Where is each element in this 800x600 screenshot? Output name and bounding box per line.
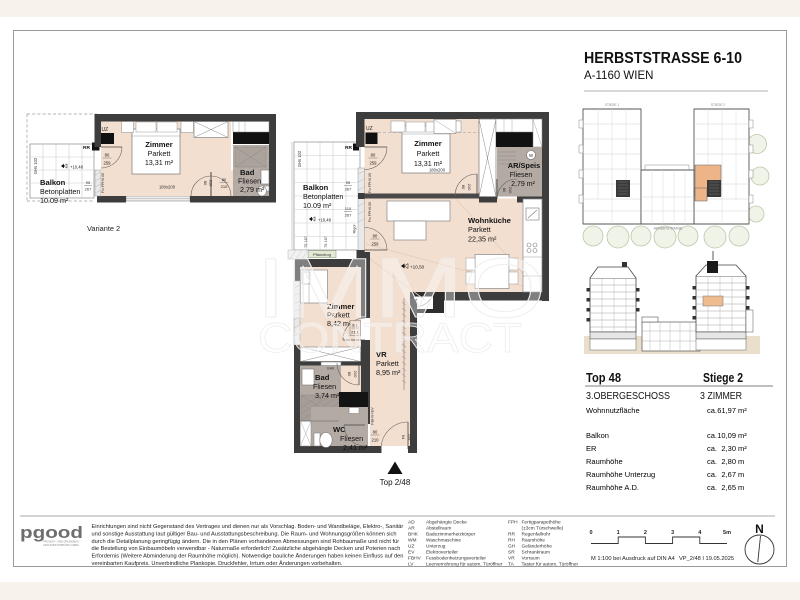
svg-text:Parkett: Parkett: [417, 149, 440, 158]
svg-text:FPH: FPH: [508, 520, 518, 526]
svg-text:HERBSTSTRASSE: HERBSTSTRASSE: [654, 227, 684, 231]
svg-text:210: 210: [508, 187, 513, 194]
svg-text:180x200: 180x200: [429, 168, 446, 173]
svg-text:2,67: 2,67: [721, 470, 736, 479]
svg-text:2,41 m²: 2,41 m²: [343, 443, 368, 452]
svg-text:GHs 102: GHs 102: [33, 157, 38, 174]
svg-text:1: 1: [617, 530, 620, 536]
svg-text:Balkon: Balkon: [303, 183, 329, 192]
svg-text:Einrichtungen sind nicht Gegen: Einrichtungen sind nicht Gegenstand des …: [92, 524, 404, 530]
svg-text:Raumhöhe A.D.: Raumhöhe A.D.: [586, 483, 639, 492]
svg-text:10.09 m²: 10.09 m²: [303, 201, 332, 210]
svg-text:Leerverrohrung für autom. Türö: Leerverrohrung für autom. Türöffner: [426, 562, 503, 568]
svg-text:RR: RR: [83, 145, 90, 151]
svg-text:Fertigparapethöhe: Fertigparapethöhe: [522, 520, 562, 526]
svg-text:Taster für autom. Türöffner: Taster für autom. Türöffner: [522, 562, 579, 568]
svg-text:Top 48: Top 48: [586, 371, 621, 385]
svg-text:10.09 m²: 10.09 m²: [40, 196, 69, 205]
svg-text:80: 80: [222, 177, 227, 182]
svg-text:STIEGE 2: STIEGE 2: [711, 103, 726, 107]
svg-text:Abgehängte Decke: Abgehängte Decke: [426, 520, 467, 526]
svg-text:m²: m²: [738, 406, 747, 415]
svg-text:Parkett: Parkett: [148, 149, 171, 158]
svg-text:Vorraum: Vorraum: [522, 556, 540, 562]
svg-text:267: 267: [345, 213, 352, 218]
svg-text:N: N: [755, 522, 764, 536]
svg-text:61,97: 61,97: [717, 406, 736, 415]
svg-text:210: 210: [467, 184, 472, 191]
svg-text:80: 80: [461, 185, 466, 190]
svg-text:267: 267: [345, 187, 352, 192]
svg-text:BHK: BHK: [327, 367, 335, 371]
svg-text:PROJEKT- UND GRUNDBAU: PROJEKT- UND GRUNDBAU: [43, 540, 79, 544]
svg-text:(±3cm Türschwelle): (±3cm Türschwelle): [522, 526, 564, 532]
svg-text:RH: RH: [508, 538, 515, 544]
svg-text:vereinbarten Kaufpreis. Unverb: vereinbarten Kaufpreis. Unverbindliche P…: [92, 560, 343, 567]
svg-text:Betonplatten: Betonplatten: [303, 192, 343, 201]
svg-text:Balkon: Balkon: [40, 178, 66, 187]
svg-text:Fliesen: Fliesen: [510, 172, 533, 179]
svg-text:2,79 m²: 2,79 m²: [511, 181, 535, 188]
svg-text:Unterzug: Unterzug: [426, 544, 446, 550]
svg-text:2,80: 2,80: [721, 457, 736, 466]
svg-text:RR: RR: [345, 145, 352, 151]
svg-text:Zimmer: Zimmer: [414, 139, 441, 148]
svg-text:AD: AD: [408, 520, 415, 526]
svg-text:80: 80: [105, 153, 110, 158]
svg-text:210: 210: [372, 438, 380, 443]
svg-text:durch die Detailplanung gering: durch die Detailplanung geringfügig ände…: [92, 539, 400, 545]
svg-text:+10,48: +10,48: [318, 218, 332, 223]
svg-text:HERBSTSTRASSE 6-10: HERBSTSTRASSE 6-10: [584, 50, 742, 67]
svg-text:RR: RR: [508, 532, 515, 538]
svg-text:3,74 m²: 3,74 m²: [315, 391, 340, 400]
svg-text:ca.: ca.: [707, 483, 717, 492]
svg-text:ca.: ca.: [707, 444, 717, 453]
svg-text:A-1160 WIEN: A-1160 WIEN: [584, 70, 653, 82]
svg-text:WM: WM: [408, 538, 417, 544]
svg-text:EV: EV: [408, 550, 415, 556]
svg-text:Geländerhöhe: Geländerhöhe: [522, 544, 553, 550]
svg-text:3.OBERGESCHOSS: 3.OBERGESCHOSS: [586, 390, 670, 402]
svg-text:Fix FPH0,00: Fix FPH0,00: [101, 173, 105, 193]
svg-text:10,09: 10,09: [717, 431, 736, 440]
svg-text:TA: TA: [508, 562, 515, 568]
svg-text:267: 267: [85, 187, 92, 192]
svg-text:Stiege 2: Stiege 2: [703, 371, 743, 385]
svg-text:+10,48: +10,48: [70, 165, 84, 170]
svg-text:AR: AR: [408, 526, 415, 532]
svg-text:CONTRACT: CONTRACT: [258, 314, 522, 361]
svg-text:80: 80: [347, 372, 352, 377]
svg-text:ca.: ca.: [707, 406, 717, 415]
svg-text:210: 210: [209, 180, 214, 187]
svg-text:Regenfallrohr: Regenfallrohr: [522, 532, 551, 538]
svg-text:GH: GH: [508, 544, 516, 550]
svg-text:80: 80: [203, 181, 208, 186]
svg-text:m: m: [738, 457, 744, 466]
svg-text:Fix FPH0,00: Fix FPH0,00: [368, 173, 372, 193]
svg-text:3: 3: [671, 530, 674, 536]
svg-text:m²: m²: [738, 444, 747, 453]
svg-text:210: 210: [353, 371, 358, 378]
svg-text:Abstellraum: Abstellraum: [426, 526, 451, 532]
svg-text:3 ZIMMER: 3 ZIMMER: [700, 390, 742, 402]
svg-text:80: 80: [373, 430, 378, 435]
svg-text:Badezimmerheizkörper: Badezimmerheizkörper: [426, 532, 476, 538]
svg-text:Fussbodenheizungsverteiler: Fussbodenheizungsverteiler: [426, 556, 486, 562]
svg-text:ca.: ca.: [707, 470, 717, 479]
svg-text:Wohnnutzfläche: Wohnnutzfläche: [586, 406, 640, 415]
svg-text:Elektroverteiler: Elektroverteiler: [426, 550, 458, 556]
svg-text:Fliesen: Fliesen: [313, 382, 336, 391]
svg-text:Raumhöhe Unterzug: Raumhöhe Unterzug: [586, 470, 655, 479]
svg-text:Balkon: Balkon: [586, 431, 609, 440]
svg-text:259: 259: [104, 161, 112, 166]
svg-text:5m: 5m: [723, 530, 731, 536]
svg-text:Zimmer: Zimmer: [145, 140, 172, 149]
svg-text:M 1:100 bei Ausdruck auf DIN A: M 1:100 bei Ausdruck auf DIN A4: [591, 556, 675, 562]
svg-text:UZ: UZ: [408, 544, 414, 550]
svg-text:0: 0: [589, 530, 592, 536]
svg-text:13,31 m²: 13,31 m²: [145, 158, 174, 167]
svg-text:259: 259: [370, 161, 378, 166]
svg-text:219: 219: [407, 434, 412, 441]
svg-text:die Bestellung von Einbaumöbel: die Bestellung von Einbaumöbeln verwendb…: [92, 546, 401, 552]
svg-text:ER: ER: [586, 444, 597, 453]
svg-text:BHK: BHK: [408, 532, 419, 538]
svg-text:AR/Speis: AR/Speis: [508, 161, 540, 170]
svg-text:SR: SR: [508, 550, 515, 556]
svg-text:Fliesen: Fliesen: [340, 434, 363, 443]
svg-text:m²: m²: [738, 431, 747, 440]
svg-text:Bad: Bad: [315, 373, 330, 382]
svg-text:Wohnküche: Wohnküche: [468, 216, 511, 225]
svg-text:80: 80: [502, 188, 507, 193]
svg-text:2: 2: [644, 530, 647, 536]
svg-text:94: 94: [401, 435, 406, 440]
svg-text:Top 2/48: Top 2/48: [380, 478, 411, 487]
svg-text:2,30: 2,30: [721, 444, 736, 453]
svg-text:LV: LV: [408, 562, 414, 568]
svg-text:ca.: ca.: [707, 431, 717, 440]
svg-text:Raumhöhe: Raumhöhe: [586, 457, 623, 466]
svg-text:80: 80: [371, 153, 376, 158]
svg-text:8,95 m²: 8,95 m²: [376, 368, 401, 377]
svg-text:FBHV: FBHV: [408, 556, 422, 562]
svg-text:m: m: [738, 470, 744, 479]
svg-text:UZ: UZ: [366, 126, 373, 132]
svg-text:STIEGE 1: STIEGE 1: [605, 103, 620, 107]
svg-text:Erfordernis (Weitere Abminderu: Erfordernis (Weitere Abminderung der Rau…: [92, 553, 404, 560]
svg-text:95: 95: [86, 180, 91, 185]
svg-text:95: 95: [346, 180, 351, 185]
svg-text:Raumhöhe: Raumhöhe: [522, 538, 546, 544]
svg-text:pgood: pgood: [20, 523, 83, 542]
svg-text:Fix FPH0,00: Fix FPH0,00: [368, 202, 372, 222]
svg-text:Waschmaschine: Waschmaschine: [426, 538, 461, 544]
svg-text:ARCHITEKTURBÜRO GMBH: ARCHITEKTURBÜRO GMBH: [43, 543, 79, 547]
svg-text:Rigol: Rigol: [353, 225, 357, 234]
svg-text:VR: VR: [508, 556, 515, 562]
svg-text:Schrankraum: Schrankraum: [522, 550, 551, 556]
svg-text:110: 110: [345, 206, 352, 211]
svg-text:180x200: 180x200: [159, 185, 176, 190]
svg-text:80: 80: [373, 234, 378, 239]
svg-text:VP_2/48 I 19.05.2025: VP_2/48 I 19.05.2025: [679, 556, 734, 562]
svg-text:GHs 102: GHs 102: [297, 150, 302, 167]
svg-text:und sonstige Ausstattung laut: und sonstige Ausstattung laut gültiger B…: [92, 531, 397, 537]
svg-text:FBHV+EV: FBHV+EV: [371, 407, 375, 425]
svg-text:ca.: ca.: [707, 457, 717, 466]
svg-text:210: 210: [221, 184, 228, 189]
svg-text:Variante 2: Variante 2: [87, 224, 120, 233]
svg-text:UZ: UZ: [102, 127, 109, 133]
svg-text:Betonplatten: Betonplatten: [40, 187, 80, 196]
svg-text:Parkett: Parkett: [468, 225, 491, 234]
svg-text:2,65: 2,65: [721, 483, 736, 492]
svg-text:2,79 m²: 2,79 m²: [240, 185, 265, 194]
svg-text:m: m: [738, 483, 744, 492]
